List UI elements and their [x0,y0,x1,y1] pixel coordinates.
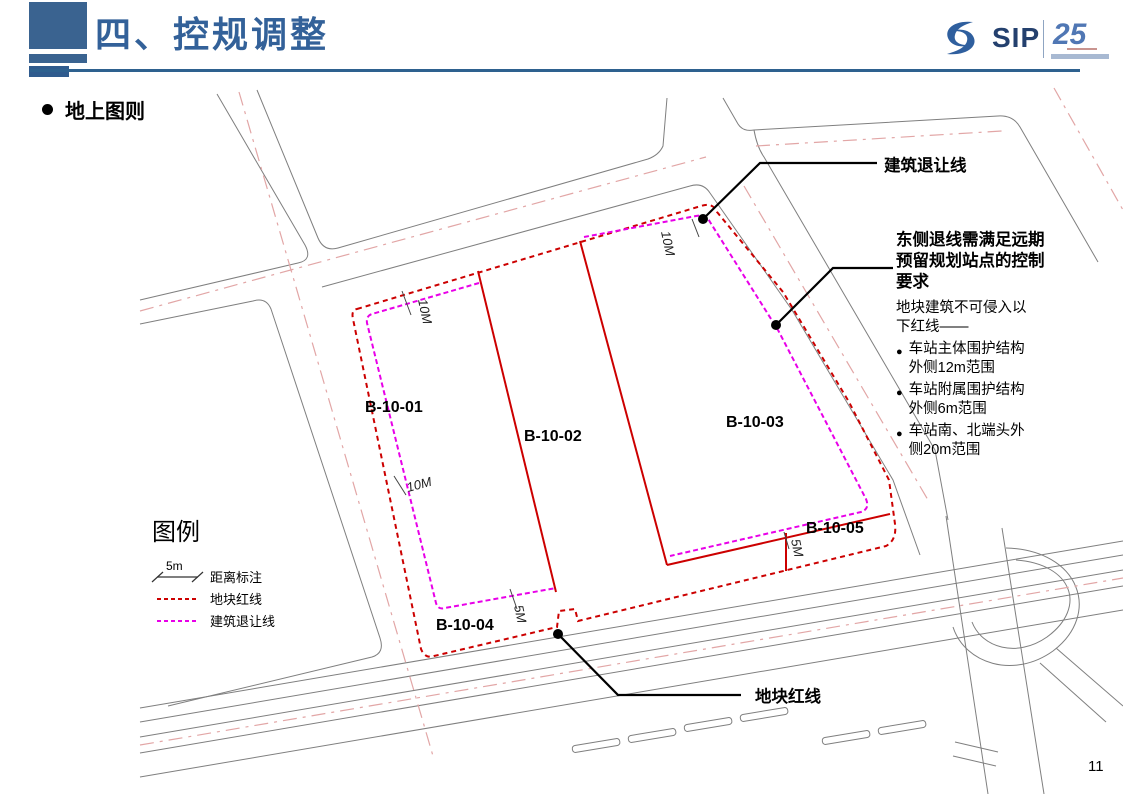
legend-title: 图例 [152,519,200,546]
parcel-division-lines [478,241,890,592]
dimension-label-5m-a: 5M [511,604,529,625]
parcel-label-b-10-02: B-10-02 [524,428,582,445]
parcel-label-b-10-01: B-10-01 [365,399,423,416]
legend-dimension-sample [152,572,203,582]
parcel-label-b-10-04: B-10-04 [436,617,494,634]
legend-item-setback: 建筑退让线 [210,614,275,629]
bullet-dot-icon: ● [896,343,903,378]
legend-item-redline: 地块红线 [210,592,262,607]
legend-scale-text: 5m [166,559,183,573]
east-setback-note: 东侧退线需满足远期 预留规划站点的控制 要求 地块建筑不可侵入以 下红线—— ●… [896,230,1106,460]
dimension-label-5m-b: 5M [788,538,806,559]
legend: 图例 5m 距离标注 地块红线 建筑退让线 [152,519,275,629]
dimension-label-10m-c: 10M [658,230,678,258]
setback-line-annotation: 建筑退让线 [884,155,967,175]
bullet-dot-icon: ● [896,384,903,419]
note-bullet-3: ● 车站南、北端头外侧20m范围 [896,422,1106,460]
note-title: 东侧退线需满足远期 预留规划站点的控制 要求 [896,230,1106,293]
parcel-label-b-10-05: B-10-05 [806,520,864,537]
dimension-label-10m-b: 10M [405,474,433,495]
legend-item-dimension: 距离标注 [210,570,262,585]
bullet-dot-icon: ● [896,425,903,460]
note-intro: 地块建筑不可侵入以 下红线—— [896,299,1106,337]
dimension-label-10m-a: 10M [415,298,435,326]
note-bullet-1: ● 车站主体围护结构外侧12m范围 [896,340,1106,378]
parcel-redline-boundary [353,205,896,657]
note-bullet-2: ● 车站附属围护结构外侧6m范围 [896,381,1106,419]
page-number: 11 [1088,758,1104,775]
redline-annotation: 地块红线 [755,686,822,706]
parcel-label-b-10-03: B-10-03 [726,414,784,431]
